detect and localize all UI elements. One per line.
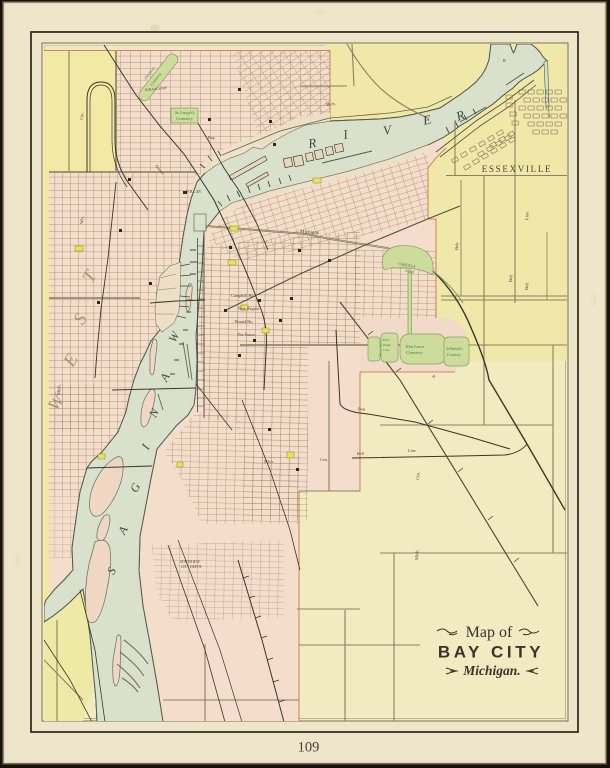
- svg-text:Mich.: Mich.: [326, 101, 336, 107]
- svg-text:Pine: Pine: [382, 338, 390, 342]
- svg-text:The Fraser: The Fraser: [237, 332, 256, 337]
- svg-text:Cemetery: Cemetery: [447, 353, 461, 357]
- svg-text:Bound Ho.: Bound Ho.: [235, 319, 253, 324]
- svg-text:Mich.: Mich.: [264, 459, 274, 464]
- svg-text:BAY CITY: BAY CITY: [438, 643, 544, 662]
- svg-text:Michigan.: Michigan.: [462, 663, 520, 678]
- svg-text:Line: Line: [408, 448, 416, 453]
- svg-text:Map of: Map of: [466, 624, 513, 641]
- svg-text:St.Joseph's: St.Joseph's: [175, 110, 195, 115]
- svg-text:Line: Line: [524, 212, 529, 221]
- svg-text:Cemetery: Cemetery: [176, 116, 193, 121]
- svg-text:SOUTH BAY: SOUTH BAY: [180, 560, 201, 564]
- svg-text:Elm Lawn: Elm Lawn: [405, 344, 425, 349]
- svg-text:Belt: Belt: [508, 274, 513, 282]
- svg-text:New Regent: New Regent: [238, 306, 260, 311]
- svg-text:St.Patrick's: St.Patrick's: [446, 347, 463, 351]
- svg-text:Mich.: Mich.: [414, 549, 420, 560]
- svg-text:Belt: Belt: [454, 242, 459, 250]
- svg-text:W.B.C.RY: W.B.C.RY: [186, 190, 202, 194]
- svg-text:B: B: [503, 58, 506, 63]
- svg-text:Wis.: Wis.: [79, 216, 84, 224]
- svg-text:ESSEXVILLE: ESSEXVILLE: [482, 164, 553, 174]
- svg-text:Belt: Belt: [357, 451, 365, 456]
- svg-text:Mich.: Mich.: [56, 384, 62, 395]
- svg-text:109: 109: [298, 740, 320, 756]
- svg-text:Bay.: Bay.: [208, 135, 216, 140]
- svg-text:Ridge: Ridge: [382, 343, 391, 347]
- svg-text:CITY DEPOT: CITY DEPOT: [181, 565, 203, 569]
- svg-text:Campbell Ho.: Campbell Ho.: [231, 293, 255, 298]
- svg-text:Cen.: Cen.: [415, 471, 420, 480]
- svg-text:Cem.: Cem.: [383, 348, 390, 352]
- svg-text:Michigan: Michigan: [300, 230, 320, 236]
- svg-text:Cm.: Cm.: [79, 112, 84, 120]
- svg-text:Cen.: Cen.: [320, 457, 328, 462]
- svg-text:Belt: Belt: [524, 282, 529, 290]
- svg-text:Cemetery: Cemetery: [406, 350, 423, 355]
